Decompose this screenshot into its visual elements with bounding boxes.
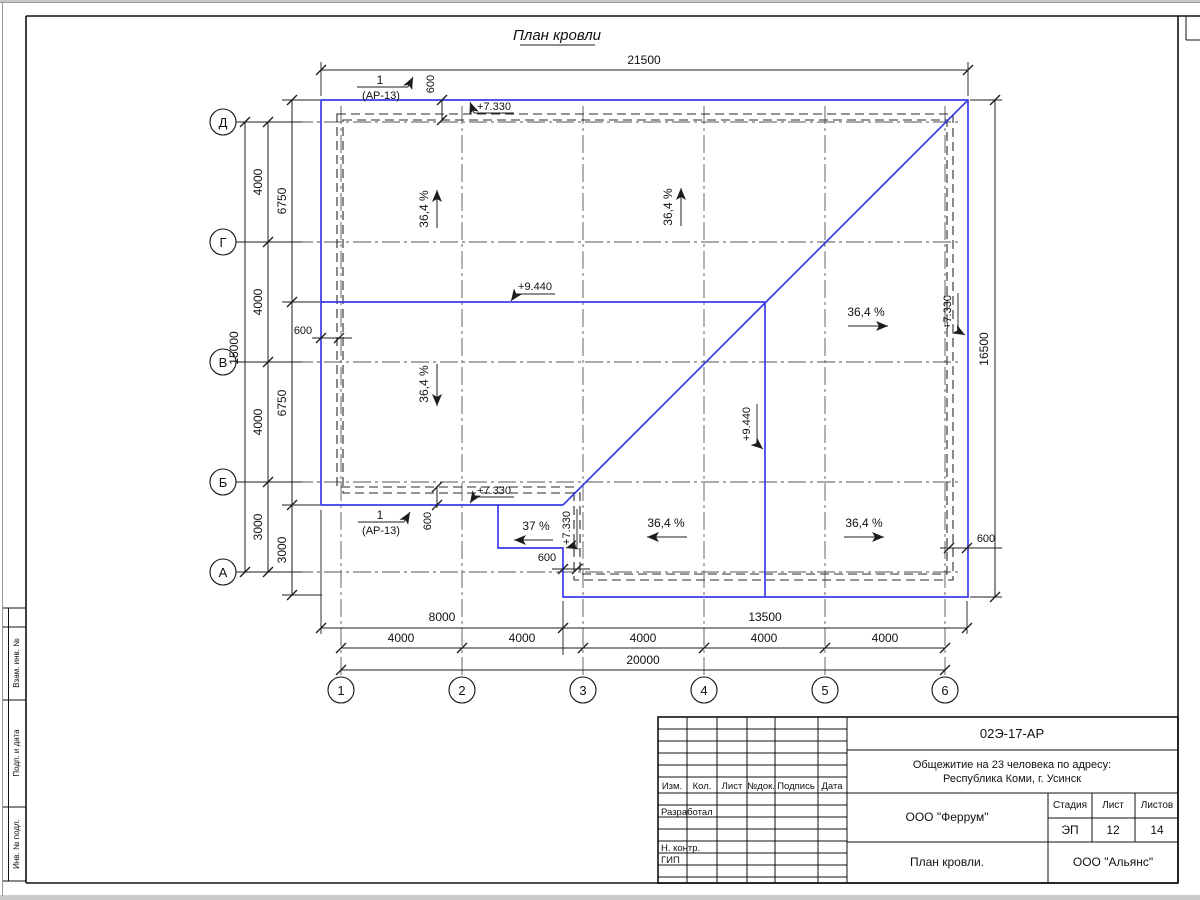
slope-label: 36,4 % xyxy=(661,188,675,226)
elevation-ridge: +9.440 xyxy=(518,281,552,293)
role-developer: Разработал xyxy=(661,807,713,818)
grid-lines xyxy=(237,106,958,677)
stage-value: ЭП xyxy=(1061,823,1078,837)
sheets-value: 14 xyxy=(1150,823,1164,837)
axis-col-label: 4 xyxy=(700,683,707,698)
dim-bottom-chain: 4000 xyxy=(630,631,657,645)
dim-right-total: 16500 xyxy=(977,332,991,366)
col-data: Дата xyxy=(821,781,843,792)
dim-overhang-top: 600 xyxy=(425,75,437,93)
col-izm: Изм. xyxy=(662,781,682,792)
dimension-ticks xyxy=(240,65,1000,675)
axis-col-label: 3 xyxy=(579,683,586,698)
sheet-title-group: План кровли xyxy=(513,27,602,45)
col-kol: Кол. xyxy=(693,781,712,792)
strip-cell-label: Взам. инв. № xyxy=(12,638,21,688)
axis-row-label: Г xyxy=(219,235,226,250)
strip-cell-label: Подп. и дата xyxy=(12,729,21,777)
axis-row-label: А xyxy=(219,565,228,580)
roof-plan-drawing: Взам. инв. № Подп. и дата Инв. № подл. П… xyxy=(0,0,1200,900)
dim-bottom-left: 8000 xyxy=(429,610,456,624)
section-callouts: 1 (АР-13) 1 (АР-13) xyxy=(357,73,413,537)
elevation-eave: +7.330 xyxy=(561,511,573,545)
sheet-value: 12 xyxy=(1106,823,1120,837)
elevation-ridge: +9.440 xyxy=(741,407,753,441)
axis-row-label: Б xyxy=(219,475,228,490)
dim-eaves-chain: 6750 xyxy=(275,389,289,416)
dim-bottom-right: 13500 xyxy=(748,610,782,624)
building-wall-outline xyxy=(337,114,953,580)
project-name-line1: Общежитие на 23 человека по адресу: xyxy=(913,759,1111,771)
drawing-sheet: Взам. инв. № Подп. и дата Инв. № подл. П… xyxy=(0,0,1200,900)
slope-label: 36,4 % xyxy=(417,365,431,403)
sheet-label: Лист xyxy=(1102,800,1124,811)
page-title: План кровли xyxy=(513,27,602,44)
dim-bottom-chain: 4000 xyxy=(751,631,778,645)
side-strip: Взам. инв. № Подп. и дата Инв. № подл. xyxy=(3,608,26,881)
dim-eaves-chain: 6750 xyxy=(275,187,289,214)
axis-labels: Д Г В Б А 1 2 3 4 5 6 xyxy=(219,115,949,698)
col-podpis: Подпись xyxy=(777,781,815,792)
drawing-frame xyxy=(26,16,1200,883)
slope-label: 36,4 % xyxy=(847,305,885,319)
dim-left-total: 15000 xyxy=(227,331,241,365)
dim-overhang-canopy: 600 xyxy=(422,512,434,530)
dimension-lines xyxy=(236,62,1002,670)
company-name: ООО "Альянс" xyxy=(1073,855,1153,869)
dim-left-chain: 3000 xyxy=(251,513,265,540)
dim-bottom-chain: 4000 xyxy=(872,631,899,645)
slope-label: 36,4 % xyxy=(845,516,883,530)
project-name-line2: Республика Коми, г. Усинск xyxy=(943,773,1081,785)
slope-label: 36,4 % xyxy=(417,190,431,228)
dim-bottom-chain: 4000 xyxy=(509,631,536,645)
axis-col-label: 2 xyxy=(458,683,465,698)
callout-number: 1 xyxy=(377,73,384,87)
axis-col-label: 1 xyxy=(337,683,344,698)
elevation-eave: +7.330 xyxy=(477,101,511,113)
dimension-texts: 21500 15000 4000 4000 4000 3000 6750 675… xyxy=(227,53,995,667)
dim-overhang-left: 600 xyxy=(294,325,312,337)
slope-label-porch: 37 % xyxy=(522,519,550,533)
col-ndok: №док. xyxy=(747,781,775,792)
elevation-eave: +7.330 xyxy=(942,295,954,329)
callout-number: 1 xyxy=(377,508,384,522)
dim-overhang-step: 600 xyxy=(538,552,556,564)
strip-cell-label: Инв. № подл. xyxy=(12,819,21,869)
elevation-eave: +7.330 xyxy=(477,485,511,497)
callout-sheet-ref: (АР-13) xyxy=(362,90,400,102)
axis-col-label: 5 xyxy=(821,683,828,698)
stage-label: Стадия xyxy=(1053,800,1087,811)
axis-row-label: Д xyxy=(219,115,228,130)
col-list: Лист xyxy=(722,781,743,792)
role-gip: ГИП xyxy=(661,855,680,866)
axis-markers xyxy=(210,109,958,703)
role-ncontrol: Н. контр. xyxy=(661,843,700,854)
dim-bottom-chain: 4000 xyxy=(388,631,415,645)
dim-left-chain: 4000 xyxy=(251,288,265,315)
contractor-name: ООО "Феррум" xyxy=(906,810,989,824)
sheets-label: Листов xyxy=(1141,800,1174,811)
elevation-marks: +7.330 +9.440 +7.330 +7.330 +7.330 +9.44… xyxy=(470,101,965,548)
title-block: 02Э-17-АР Общежитие на 23 человека по ад… xyxy=(658,717,1178,883)
dim-bottom-total: 20000 xyxy=(626,653,660,667)
drawing-title: План кровли. xyxy=(910,855,984,869)
dim-overhang-right: 600 xyxy=(977,533,995,545)
axis-col-label: 6 xyxy=(941,683,948,698)
dim-top-total: 21500 xyxy=(627,53,661,67)
dim-left-chain: 4000 xyxy=(251,408,265,435)
callout-sheet-ref: (АР-13) xyxy=(362,525,400,537)
dim-left-chain: 4000 xyxy=(251,168,265,195)
dim-eaves-chain: 3000 xyxy=(275,536,289,563)
doc-number: 02Э-17-АР xyxy=(980,726,1044,741)
slope-label: 36,4 % xyxy=(647,516,685,530)
